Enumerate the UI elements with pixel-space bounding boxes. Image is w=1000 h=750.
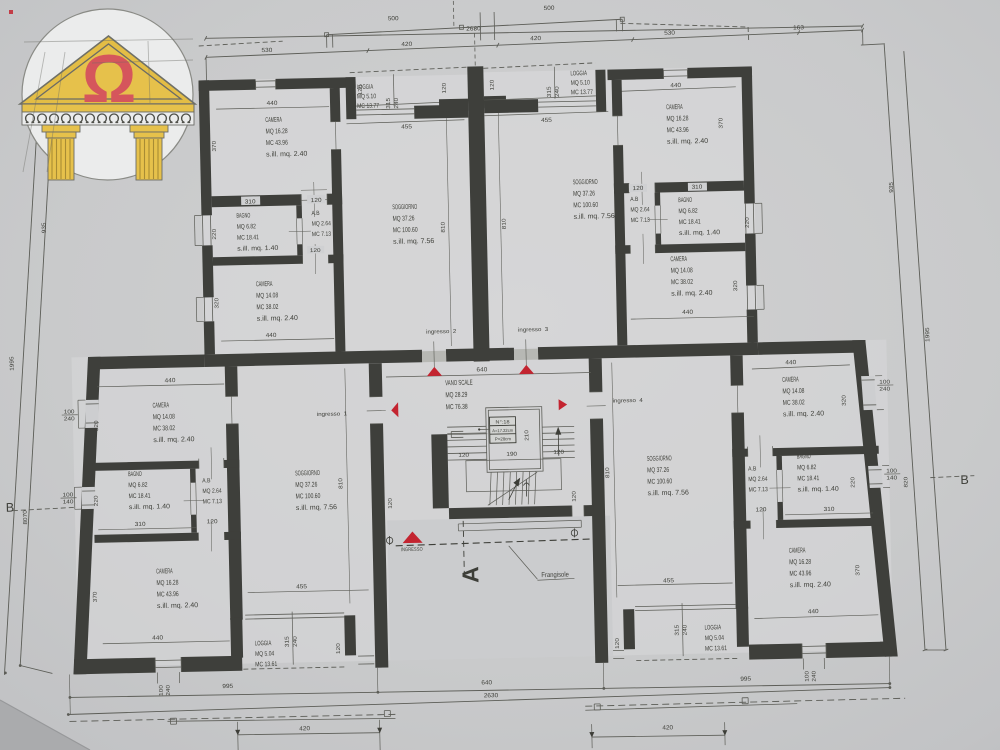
svg-text:315: 315	[674, 625, 680, 636]
svg-text:s.ill. mq. 2.40: s.ill. mq. 2.40	[667, 138, 708, 146]
svg-text:P=28cm: P=28cm	[495, 436, 511, 441]
svg-text:120: 120	[490, 80, 496, 91]
svg-text:MQ 2.64: MQ 2.64	[312, 220, 332, 227]
svg-text:VANO SCALE: VANO SCALE	[445, 378, 473, 388]
svg-text:s.ill. mq. 7.56: s.ill. mq. 7.56	[393, 238, 434, 246]
svg-text:310: 310	[691, 185, 702, 191]
svg-text:MQ 2.64: MQ 2.64	[630, 206, 650, 213]
svg-text:995: 995	[740, 677, 752, 683]
svg-text:810: 810	[441, 222, 447, 233]
svg-text:s.ill. mq. 1.40: s.ill. mq. 1.40	[798, 486, 840, 494]
svg-text:MQ 14.08: MQ 14.08	[153, 414, 175, 421]
svg-text:500: 500	[544, 6, 556, 12]
svg-text:MC 7.13: MC 7.13	[312, 231, 332, 238]
svg-text:BAGNO: BAGNO	[128, 471, 142, 478]
svg-text:MC 7.13: MC 7.13	[631, 217, 651, 224]
svg-text:315: 315	[285, 636, 291, 647]
svg-text:220: 220	[212, 229, 218, 240]
svg-text:810: 810	[338, 478, 344, 489]
svg-text:240: 240	[293, 636, 299, 647]
svg-text:420: 420	[299, 726, 311, 732]
svg-text:MC 7.13: MC 7.13	[203, 498, 223, 505]
svg-text:CAMERA: CAMERA	[156, 568, 173, 575]
svg-text:BAGNO: BAGNO	[678, 197, 692, 204]
svg-text:320: 320	[842, 395, 848, 406]
svg-text:120: 120	[388, 498, 394, 509]
svg-text:420: 420	[530, 36, 542, 42]
svg-text:MC 100.60: MC 100.60	[647, 478, 672, 486]
svg-text:120: 120	[615, 638, 621, 649]
svg-text:MC 43.96: MC 43.96	[789, 570, 811, 577]
svg-text:CAMERA: CAMERA	[670, 256, 687, 263]
svg-text:120: 120	[756, 507, 767, 513]
svg-text:220: 220	[745, 217, 751, 228]
svg-text:A.B: A.B	[311, 210, 319, 217]
svg-text:320: 320	[214, 298, 220, 309]
svg-text:MQ 37.26: MQ 37.26	[573, 190, 595, 197]
svg-text:MC 38.02: MC 38.02	[153, 425, 175, 432]
svg-text:420: 420	[662, 725, 674, 731]
svg-text:MC 100.60: MC 100.60	[393, 227, 418, 235]
svg-text:120: 120	[310, 248, 321, 254]
svg-text:MC 38.02: MC 38.02	[783, 399, 805, 406]
svg-text:310: 310	[824, 507, 835, 513]
svg-text:370: 370	[855, 565, 861, 576]
svg-text:240: 240	[64, 416, 75, 422]
svg-text:530: 530	[664, 31, 676, 37]
svg-text:MC 100.60: MC 100.60	[296, 493, 321, 501]
svg-text:MC 100.60: MC 100.60	[573, 202, 598, 210]
svg-text:935: 935	[889, 182, 895, 193]
svg-text:MQ 2.64: MQ 2.64	[748, 476, 768, 483]
svg-text:MC 38.02: MC 38.02	[256, 304, 278, 311]
svg-text:120: 120	[336, 643, 342, 654]
svg-text:s.ill. mq. 2.40: s.ill. mq. 2.40	[266, 151, 307, 159]
svg-text:A=17.22cm: A=17.22cm	[492, 428, 514, 433]
svg-text:120: 120	[207, 519, 218, 525]
svg-text:MC 13.61: MC 13.61	[255, 661, 277, 668]
svg-text:s.ill. mq. 2.40: s.ill. mq. 2.40	[157, 602, 198, 610]
svg-text:A.B: A.B	[748, 465, 756, 472]
svg-text:MQ 5.04: MQ 5.04	[705, 635, 725, 642]
svg-text:MC 18.41: MC 18.41	[797, 475, 819, 482]
svg-text:LOGGIA: LOGGIA	[570, 70, 587, 77]
svg-text:s.ill. mq. 7.56: s.ill. mq. 7.56	[648, 489, 689, 497]
svg-text:140: 140	[886, 475, 897, 481]
svg-text:240: 240	[555, 86, 561, 97]
svg-text:MC 43.96: MC 43.96	[266, 140, 288, 147]
svg-text:MQ 16.28: MQ 16.28	[666, 115, 688, 122]
svg-text:455: 455	[541, 118, 553, 124]
svg-text:s.ill. mq. 1.40: s.ill. mq. 1.40	[237, 245, 279, 253]
svg-text:A.B: A.B	[630, 196, 638, 203]
svg-text:120: 120	[358, 85, 364, 96]
svg-text:s.ill. mq. 2.40: s.ill. mq. 2.40	[783, 410, 824, 418]
svg-text:LOGGIA: LOGGIA	[255, 640, 272, 647]
svg-text:MQ 14.08: MQ 14.08	[782, 388, 804, 395]
svg-text:MC 76.38: MC 76.38	[446, 402, 468, 411]
svg-text:2630: 2630	[466, 26, 481, 32]
svg-text:500: 500	[388, 16, 400, 22]
svg-text:MC 7.13: MC 7.13	[748, 486, 768, 493]
svg-text:s.ill. mq. 2.40: s.ill. mq. 2.40	[153, 436, 194, 444]
svg-text:SOGGIORNO: SOGGIORNO	[295, 470, 320, 478]
svg-text:A.B: A.B	[202, 477, 210, 484]
svg-text:8070: 8070	[23, 510, 29, 525]
svg-text:CAMERA: CAMERA	[789, 547, 806, 554]
svg-text:220: 220	[94, 495, 100, 506]
svg-text:440: 440	[785, 360, 797, 366]
svg-text:440: 440	[267, 101, 279, 107]
svg-text:935: 935	[42, 222, 48, 233]
svg-text:455: 455	[663, 578, 675, 584]
svg-text:CAMERA: CAMERA	[782, 376, 799, 383]
svg-text:120: 120	[633, 186, 644, 192]
svg-text:240: 240	[879, 386, 890, 392]
svg-text:MC 38.02: MC 38.02	[671, 279, 693, 286]
svg-text:SOGGIORNO: SOGGIORNO	[573, 179, 598, 187]
svg-text:MQ 28.29: MQ 28.29	[445, 390, 467, 399]
svg-text:Frangisole: Frangisole	[541, 572, 569, 580]
svg-text:CAMERA: CAMERA	[256, 281, 273, 288]
svg-text:370: 370	[212, 141, 218, 152]
svg-text:240: 240	[394, 98, 400, 109]
svg-text:MQ 16.28: MQ 16.28	[156, 580, 178, 587]
svg-text:310: 310	[245, 199, 256, 205]
svg-text:ingresso 1: ingresso 1	[317, 411, 347, 418]
svg-text:440: 440	[152, 635, 164, 641]
svg-text:BAGNO: BAGNO	[236, 212, 250, 219]
svg-text:190: 190	[506, 452, 517, 458]
svg-text:s.ill. mq. 2.40: s.ill. mq. 2.40	[790, 581, 831, 589]
svg-text:INGRESSO: INGRESSO	[401, 547, 423, 553]
svg-text:MC 13.77: MC 13.77	[571, 89, 593, 96]
svg-text:MQ 37.26: MQ 37.26	[393, 215, 415, 222]
svg-text:640: 640	[476, 367, 488, 373]
svg-text:CAMERA: CAMERA	[153, 402, 170, 409]
svg-text:MQ 5.04: MQ 5.04	[255, 650, 275, 657]
svg-text:210: 210	[524, 430, 530, 441]
svg-text:1995: 1995	[9, 356, 15, 371]
svg-text:MQ 16.28: MQ 16.28	[789, 559, 811, 566]
svg-text:MC 13.77: MC 13.77	[357, 103, 379, 110]
svg-text:s.ill. mq. 2.40: s.ill. mq. 2.40	[671, 290, 712, 298]
svg-text:MQ 16.28: MQ 16.28	[266, 128, 288, 135]
svg-text:LOGGIA: LOGGIA	[704, 624, 721, 631]
svg-text:120: 120	[458, 453, 469, 459]
svg-text:MC 43.96: MC 43.96	[157, 591, 179, 598]
svg-text:440: 440	[808, 609, 820, 615]
svg-text:420: 420	[401, 42, 413, 48]
svg-text:MQ 2.64: MQ 2.64	[202, 488, 222, 495]
svg-text:240: 240	[682, 625, 688, 636]
svg-text:MC 13.61: MC 13.61	[705, 645, 727, 652]
svg-text:455: 455	[296, 584, 308, 590]
svg-text:SOGGIORNO: SOGGIORNO	[647, 455, 672, 463]
svg-text:s.ill. mq. 7.56: s.ill. mq. 7.56	[296, 504, 337, 512]
svg-text:370: 370	[93, 591, 99, 602]
svg-text:220: 220	[850, 477, 856, 488]
svg-text:SOGGIORNO: SOGGIORNO	[392, 204, 417, 212]
svg-text:120: 120	[311, 198, 322, 204]
svg-text:440: 440	[266, 333, 278, 339]
svg-text:315: 315	[547, 86, 553, 97]
svg-text:MQ 14.08: MQ 14.08	[671, 267, 693, 274]
svg-text:MQ 6.82: MQ 6.82	[678, 208, 698, 215]
svg-text:810: 810	[605, 467, 611, 478]
svg-text:140: 140	[63, 499, 74, 505]
svg-text:530: 530	[261, 48, 273, 54]
svg-text:320: 320	[733, 280, 739, 291]
svg-text:MC 18.41: MC 18.41	[128, 493, 150, 500]
svg-text:315: 315	[386, 98, 392, 109]
svg-text:A: A	[457, 566, 483, 583]
svg-text:MQ 5.10: MQ 5.10	[571, 79, 591, 86]
svg-text:MQ 14.08: MQ 14.08	[256, 292, 278, 299]
svg-text:MQ 6.82: MQ 6.82	[797, 464, 817, 471]
svg-text:MC 18.41: MC 18.41	[237, 234, 259, 241]
svg-text:100: 100	[159, 685, 165, 696]
svg-text:810: 810	[502, 218, 508, 229]
svg-text:1995: 1995	[925, 327, 931, 342]
svg-text:2630: 2630	[484, 693, 499, 699]
svg-text:120: 120	[442, 83, 448, 94]
svg-text:100: 100	[805, 671, 811, 682]
svg-text:s.ill. mq. 2.40: s.ill. mq. 2.40	[257, 315, 298, 323]
svg-text:CAMERA: CAMERA	[265, 117, 282, 124]
svg-text:N°:18: N°:18	[495, 419, 509, 425]
svg-text:BAGNO: BAGNO	[797, 453, 811, 460]
svg-text:440: 440	[682, 310, 694, 316]
svg-text:995: 995	[222, 684, 234, 690]
svg-text:820: 820	[903, 477, 909, 488]
svg-text:120: 120	[572, 491, 578, 502]
svg-text:B: B	[6, 501, 15, 515]
svg-text:s.ill. mq. 1.40: s.ill. mq. 1.40	[129, 503, 171, 511]
svg-text:MQ 6.82: MQ 6.82	[128, 482, 148, 489]
svg-text:320: 320	[94, 420, 100, 431]
svg-text:ingresso 2: ingresso 2	[426, 329, 456, 336]
svg-text:455: 455	[401, 124, 413, 130]
svg-text:240: 240	[166, 685, 172, 696]
svg-text:440: 440	[165, 378, 177, 384]
svg-text:240: 240	[812, 671, 818, 682]
svg-text:MC 18.41: MC 18.41	[679, 219, 701, 226]
svg-text:ingresso 4: ingresso 4	[613, 398, 643, 405]
svg-text:163: 163	[793, 25, 805, 31]
svg-text:MQ 37.26: MQ 37.26	[647, 467, 669, 474]
svg-text:MC 43.96: MC 43.96	[667, 127, 689, 134]
svg-text:MQ 6.82: MQ 6.82	[237, 223, 257, 230]
svg-text:s.ill. mq. 7.56: s.ill. mq. 7.56	[574, 213, 615, 221]
svg-text:ingresso 3: ingresso 3	[518, 327, 548, 334]
svg-text:CAMERA: CAMERA	[666, 104, 683, 111]
svg-text:640: 640	[481, 680, 493, 686]
svg-text:440: 440	[670, 83, 682, 89]
svg-text:310: 310	[135, 522, 146, 528]
svg-text:MQ 37.26: MQ 37.26	[295, 482, 317, 489]
svg-text:370: 370	[718, 118, 724, 129]
svg-text:s.ill. mq. 1.40: s.ill. mq. 1.40	[679, 229, 721, 237]
svg-text:B: B	[960, 473, 969, 487]
